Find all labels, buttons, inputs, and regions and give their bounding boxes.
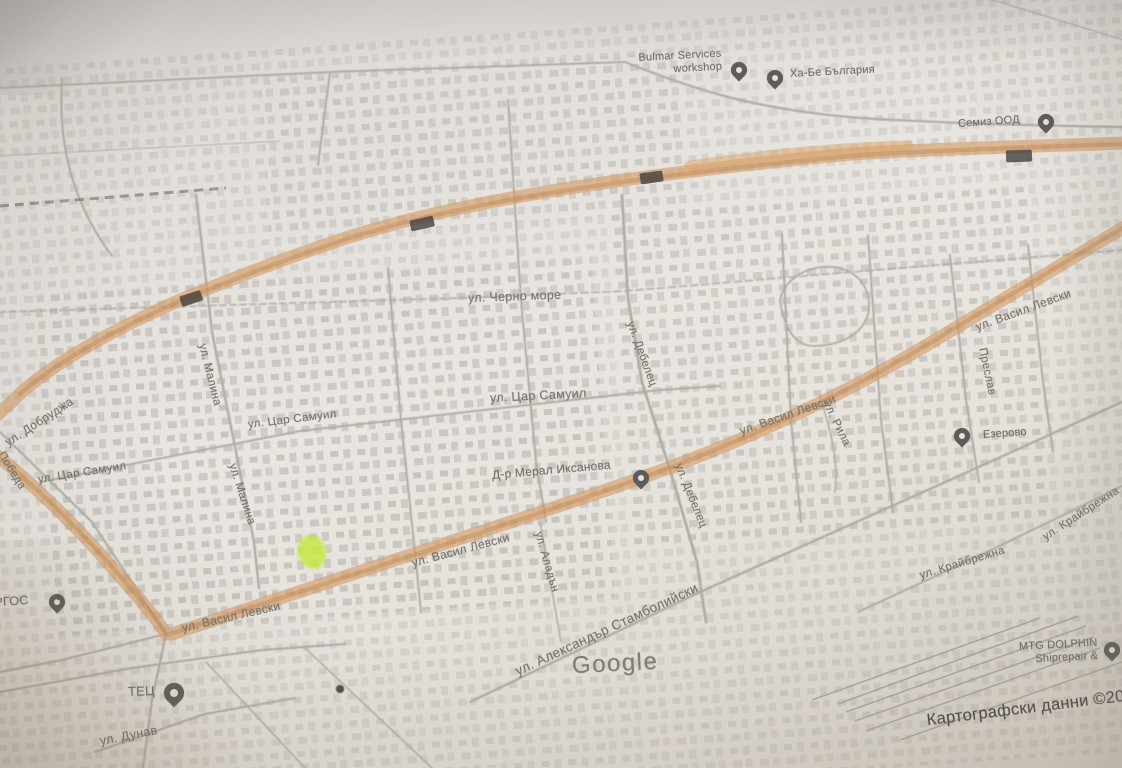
place-label-semiz: Семиз ООД bbox=[958, 114, 1021, 130]
road-shields bbox=[179, 150, 1032, 308]
map-pin-ezerovo bbox=[953, 428, 971, 450]
google-watermark: Google bbox=[571, 648, 659, 680]
paper-crease-left bbox=[0, 140, 280, 157]
street-label-aladan: ул. Аладън bbox=[532, 530, 561, 593]
street-label-cherno-more: ул. Черно море bbox=[468, 288, 562, 305]
street-label-vasil-levski-2: ул. Васил Левски bbox=[738, 392, 838, 438]
map-poi-dot bbox=[336, 685, 345, 694]
place-label-meral: Д-р Мерал Иксанова bbox=[491, 458, 611, 482]
place-label-habe: Ха-Бе България bbox=[790, 64, 875, 80]
map-pin-habe bbox=[766, 70, 784, 92]
street-label-rila: ул. Рила bbox=[821, 399, 853, 448]
photo-shadow-right bbox=[1052, 0, 1122, 768]
map-pin-bulmar bbox=[730, 62, 748, 84]
street-label-malina-2: ул. Малина bbox=[226, 462, 257, 526]
photo-shadow-bottomleft bbox=[0, 540, 330, 768]
place-label-ezerovo: Езерово bbox=[983, 426, 1028, 441]
street-label-kraybrezhna-1: ул. Крайбрежна bbox=[918, 544, 1006, 581]
street-label-debelec-2: ул. Дебелец bbox=[672, 462, 709, 530]
street-label-preslav: Преслав bbox=[976, 347, 998, 397]
street-label-car-samuil-3: ул. Цар Самуил bbox=[37, 460, 127, 486]
street-label-car-samuil-1: ул. Цар Самуил bbox=[490, 386, 587, 405]
place-label-bulmar-line2: workshop bbox=[673, 61, 722, 76]
map-photo: ул. Черно море ул. Дебелец ул. Дебелец у… bbox=[0, 0, 1122, 768]
street-label-car-samuil-2: ул. Цар Самуил bbox=[247, 408, 337, 431]
street-label-dobrudja: ул. Добруджа bbox=[2, 394, 76, 449]
photo-shadow-top bbox=[0, 0, 1122, 60]
dashed-road-marking bbox=[0, 188, 226, 206]
map-pin-meral bbox=[632, 470, 650, 492]
street-label-malina-1: ул. Малина bbox=[196, 343, 223, 408]
street-label-debelec-1: ул. Дебелец bbox=[624, 320, 659, 388]
street-label-vasil-levski-3: ул. Васил Левски bbox=[410, 530, 511, 570]
